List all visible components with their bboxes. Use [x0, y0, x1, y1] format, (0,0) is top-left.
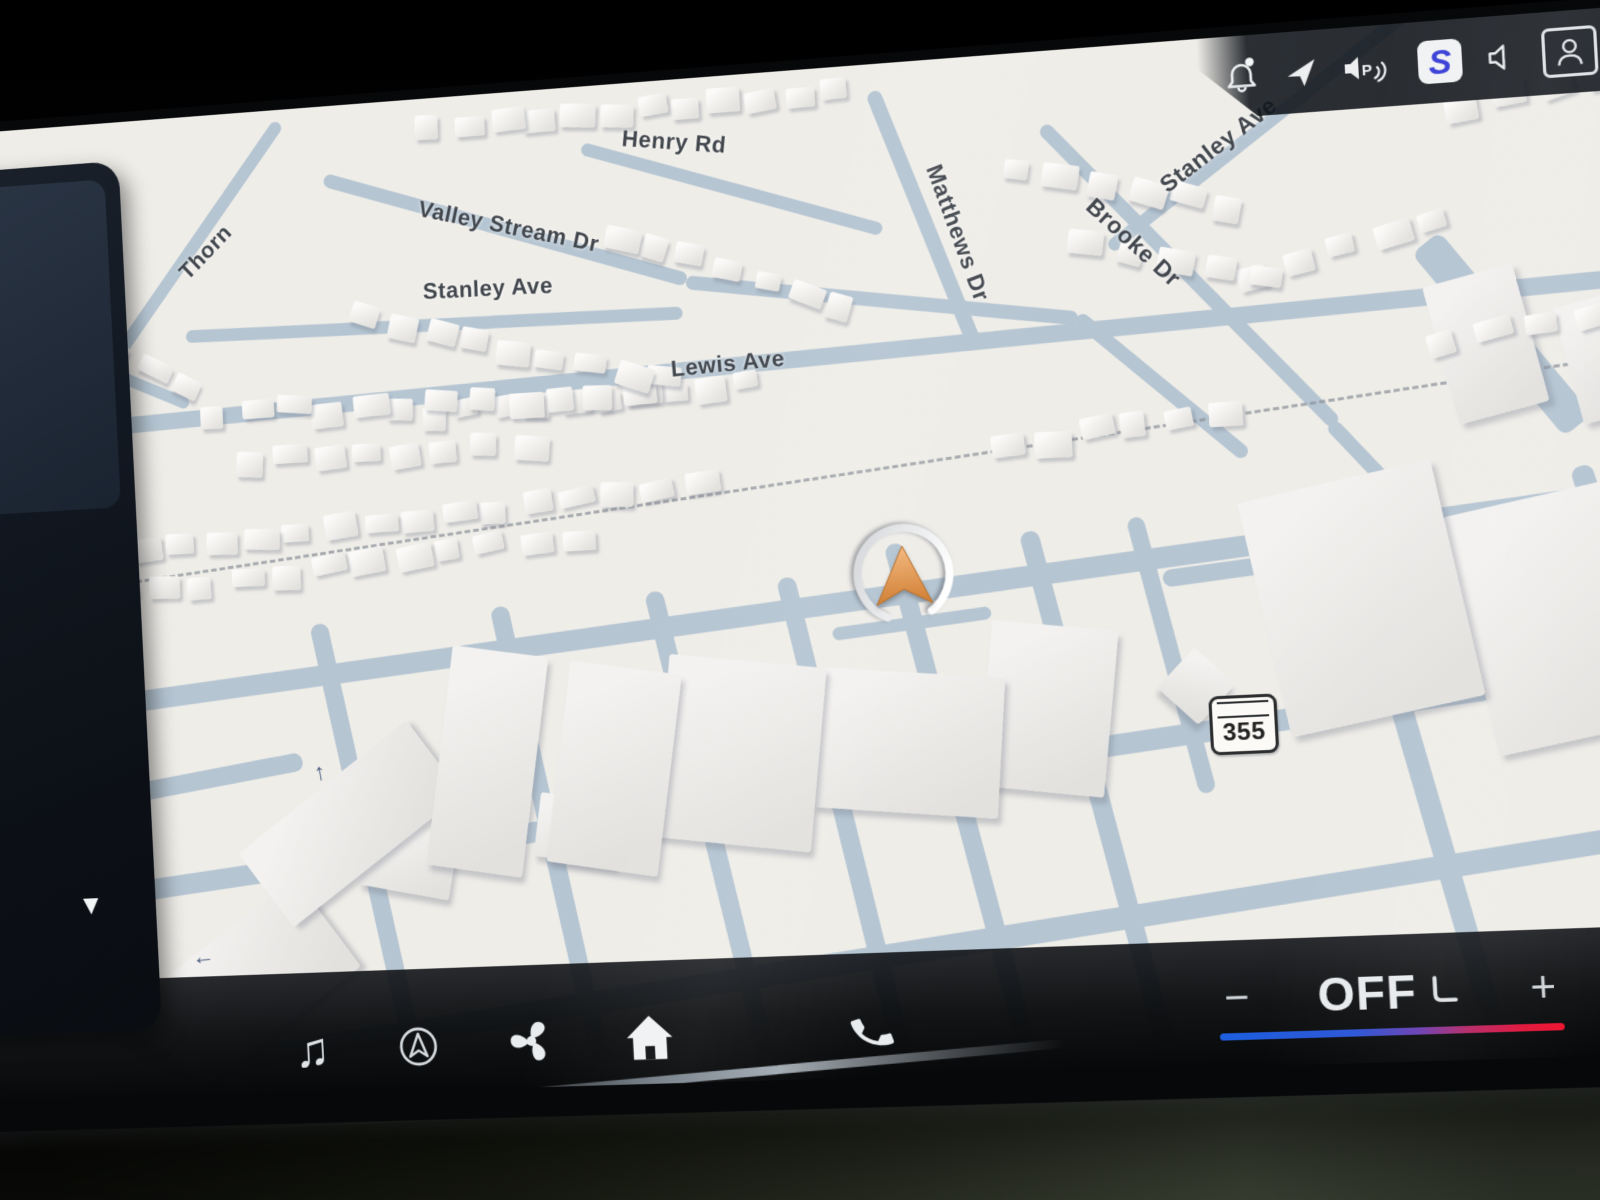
street-label-henry: Henry Rd [621, 125, 728, 159]
map-building [673, 241, 705, 267]
map-building [788, 279, 827, 310]
map-road [580, 142, 884, 236]
map-building [574, 352, 608, 374]
map-building [200, 407, 223, 430]
map-building [1035, 430, 1073, 457]
map-building [508, 392, 544, 420]
map-building [276, 395, 311, 415]
route-number: 355 [1213, 717, 1276, 748]
map-building [637, 93, 668, 118]
map-building [583, 386, 612, 411]
map-building [1119, 410, 1147, 438]
route-shield-355: 355 [1208, 693, 1279, 755]
map-building [244, 529, 280, 550]
map-building [1324, 232, 1355, 257]
map-building [459, 326, 489, 352]
map-building [671, 97, 700, 120]
media-icon[interactable]: ♫ [293, 1028, 331, 1073]
widget-collapse-button[interactable]: ▼ [78, 891, 105, 919]
map-building [428, 440, 457, 464]
map-building [1003, 158, 1030, 179]
seat-climate-off-label: OFF [1316, 968, 1417, 1018]
infotainment-screen-bezel: Thorn Valley Stream Dr Henry Rd Stanley … [0, 0, 1600, 1133]
map-road [685, 275, 1078, 325]
route-shield-banner [1217, 700, 1269, 719]
one-way-arrow: ← [191, 942, 216, 971]
map-building [523, 488, 554, 515]
gps-location-icon [1279, 50, 1323, 94]
map-building [495, 339, 531, 367]
map-building [521, 532, 555, 557]
map-building [990, 432, 1026, 458]
map-building [353, 393, 391, 419]
map-building [1416, 207, 1447, 233]
map-building [206, 532, 238, 555]
map-building [470, 433, 497, 456]
map-building [323, 510, 359, 540]
map-building [1205, 254, 1239, 280]
map-building [1524, 312, 1558, 336]
map-building [1208, 401, 1243, 427]
street-label-lewis: Lewis Ave [670, 345, 786, 383]
driver-profile-icon[interactable] [1541, 25, 1599, 79]
map-building [347, 546, 386, 577]
temp-increase-button[interactable]: + [1523, 965, 1564, 1010]
map-building [820, 77, 848, 100]
map-building [454, 115, 485, 137]
map-building [423, 408, 446, 431]
music-note-glyph: ♫ [293, 1028, 331, 1073]
map-building [242, 399, 275, 420]
map-building [706, 87, 741, 114]
map-road [1073, 311, 1251, 461]
infotainment-screen: Thorn Valley Stream Dr Henry Rd Stanley … [0, 0, 1600, 1104]
map-building [600, 482, 633, 507]
phone-icon[interactable] [848, 1009, 896, 1057]
map-building [472, 530, 505, 555]
navigation-icon[interactable] [395, 1023, 441, 1069]
map-building [786, 86, 816, 109]
apps-grid-icon[interactable] [744, 1022, 781, 1059]
map-building [533, 349, 564, 371]
map-building [310, 402, 344, 430]
temp-decrease-button[interactable]: − [1217, 975, 1257, 1019]
map-building [546, 661, 681, 877]
map-building [434, 537, 460, 562]
widget-card[interactable] [0, 179, 121, 522]
street-label-valley-stream: Valley Stream Dr [416, 196, 601, 258]
one-way-arrow: ↑ [312, 759, 328, 788]
marker-arrow [874, 545, 933, 606]
temperature-gradient-strip[interactable] [1220, 1023, 1565, 1041]
parking-sound-icon: P [1340, 44, 1401, 89]
map-building [231, 568, 265, 587]
map-building [386, 313, 419, 343]
map-building [1237, 459, 1485, 737]
map-building [743, 88, 777, 114]
map-building [424, 390, 458, 413]
map-building [824, 291, 854, 322]
map-building [562, 530, 596, 552]
map-building [387, 399, 413, 421]
map-building [813, 667, 1005, 818]
map-building [365, 513, 400, 533]
map-building [1372, 217, 1415, 250]
map-building [395, 542, 434, 573]
map-building [639, 233, 669, 262]
map-building [1163, 406, 1194, 431]
map-building [314, 444, 347, 471]
map-building [559, 104, 596, 128]
street-label-stanley-left: Stanley Ave [423, 272, 554, 305]
map-building [236, 452, 264, 478]
map-building [1282, 248, 1316, 278]
speaker-icon [1480, 35, 1524, 79]
map-building [600, 104, 633, 127]
seat-climate-state[interactable]: OFF [1316, 966, 1462, 1018]
map-building [415, 115, 438, 141]
map-building [1040, 162, 1080, 191]
climate-fan-icon[interactable] [506, 1016, 557, 1067]
seat-icon [1424, 973, 1462, 1009]
map-building [1211, 195, 1242, 224]
map-building [186, 576, 211, 600]
climate-controls: − OFF + [1217, 963, 1565, 1041]
map-building [546, 387, 575, 413]
svg-text:P: P [1361, 62, 1373, 80]
map-building [442, 499, 479, 523]
map-building [149, 576, 180, 599]
map-building [389, 442, 422, 470]
spotify-icon[interactable]: S [1417, 38, 1463, 84]
seat-climate-row: − OFF + [1217, 963, 1564, 1021]
home-icon[interactable] [622, 1010, 677, 1063]
dashboard-photo-scene: Thorn Valley Stream Dr Henry Rd Stanley … [0, 0, 1600, 1200]
spotify-glyph: S [1427, 44, 1452, 80]
map-building [522, 108, 556, 134]
map-building [272, 565, 301, 590]
map-building [272, 444, 308, 464]
map-building [1067, 229, 1105, 257]
map-building [490, 106, 524, 132]
map-building [558, 484, 596, 509]
map-building [400, 509, 434, 533]
map-building [1078, 413, 1115, 441]
map-building [352, 443, 381, 462]
map-building [281, 523, 309, 542]
map-building [469, 387, 495, 411]
map-building [514, 435, 550, 462]
vehicle-location-marker [834, 508, 973, 647]
map-building [479, 502, 505, 525]
map-building [165, 533, 194, 555]
